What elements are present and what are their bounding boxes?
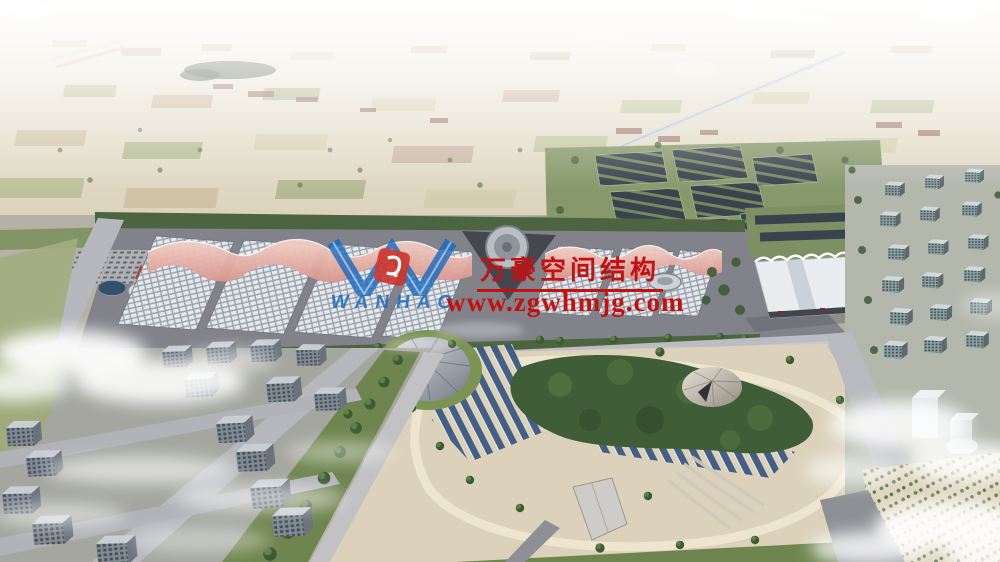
south-dome-pavilion: [649, 274, 681, 291]
small-cone-tent: [682, 367, 742, 407]
aerial-architectural-render: WANHAO 万豪空间结构 www.zgwhmjg.com: [0, 0, 1000, 562]
scene-illustration: [0, 0, 1000, 562]
central-disc-building: [486, 226, 528, 268]
horizon-haze: [0, 0, 1000, 190]
